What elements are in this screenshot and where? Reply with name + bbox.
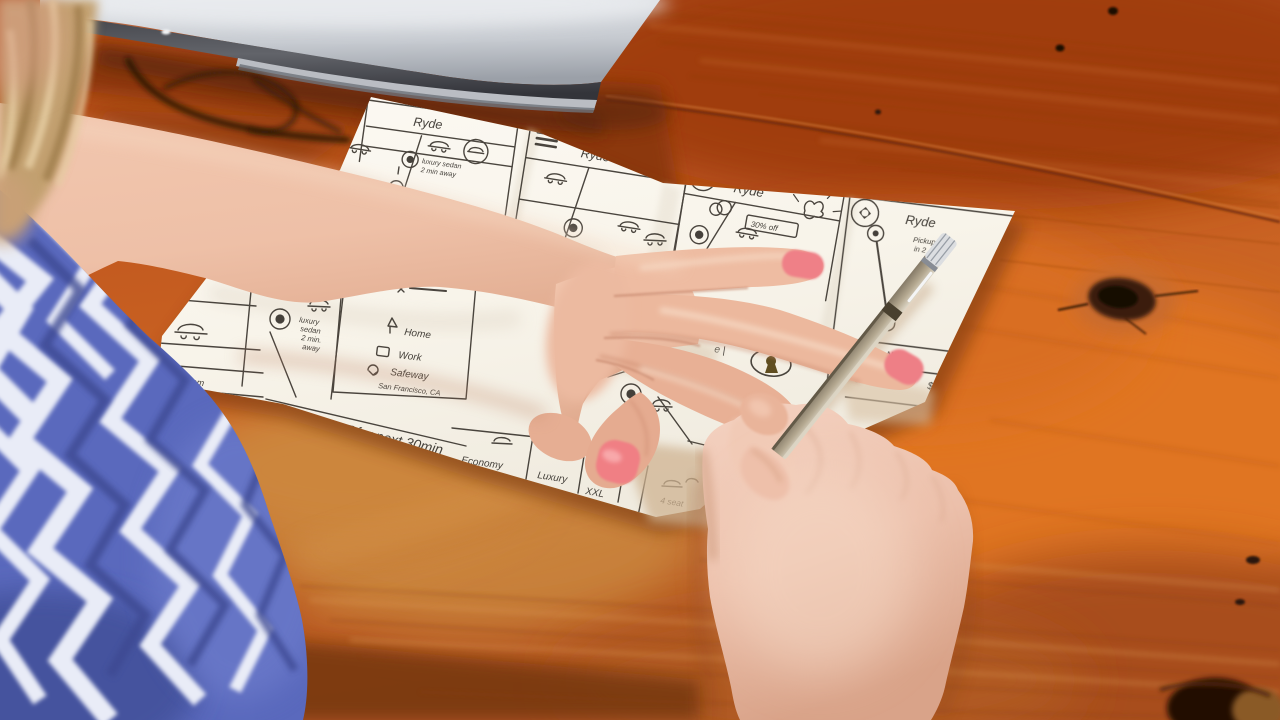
svg-text:in 2: in 2 — [914, 244, 928, 255]
